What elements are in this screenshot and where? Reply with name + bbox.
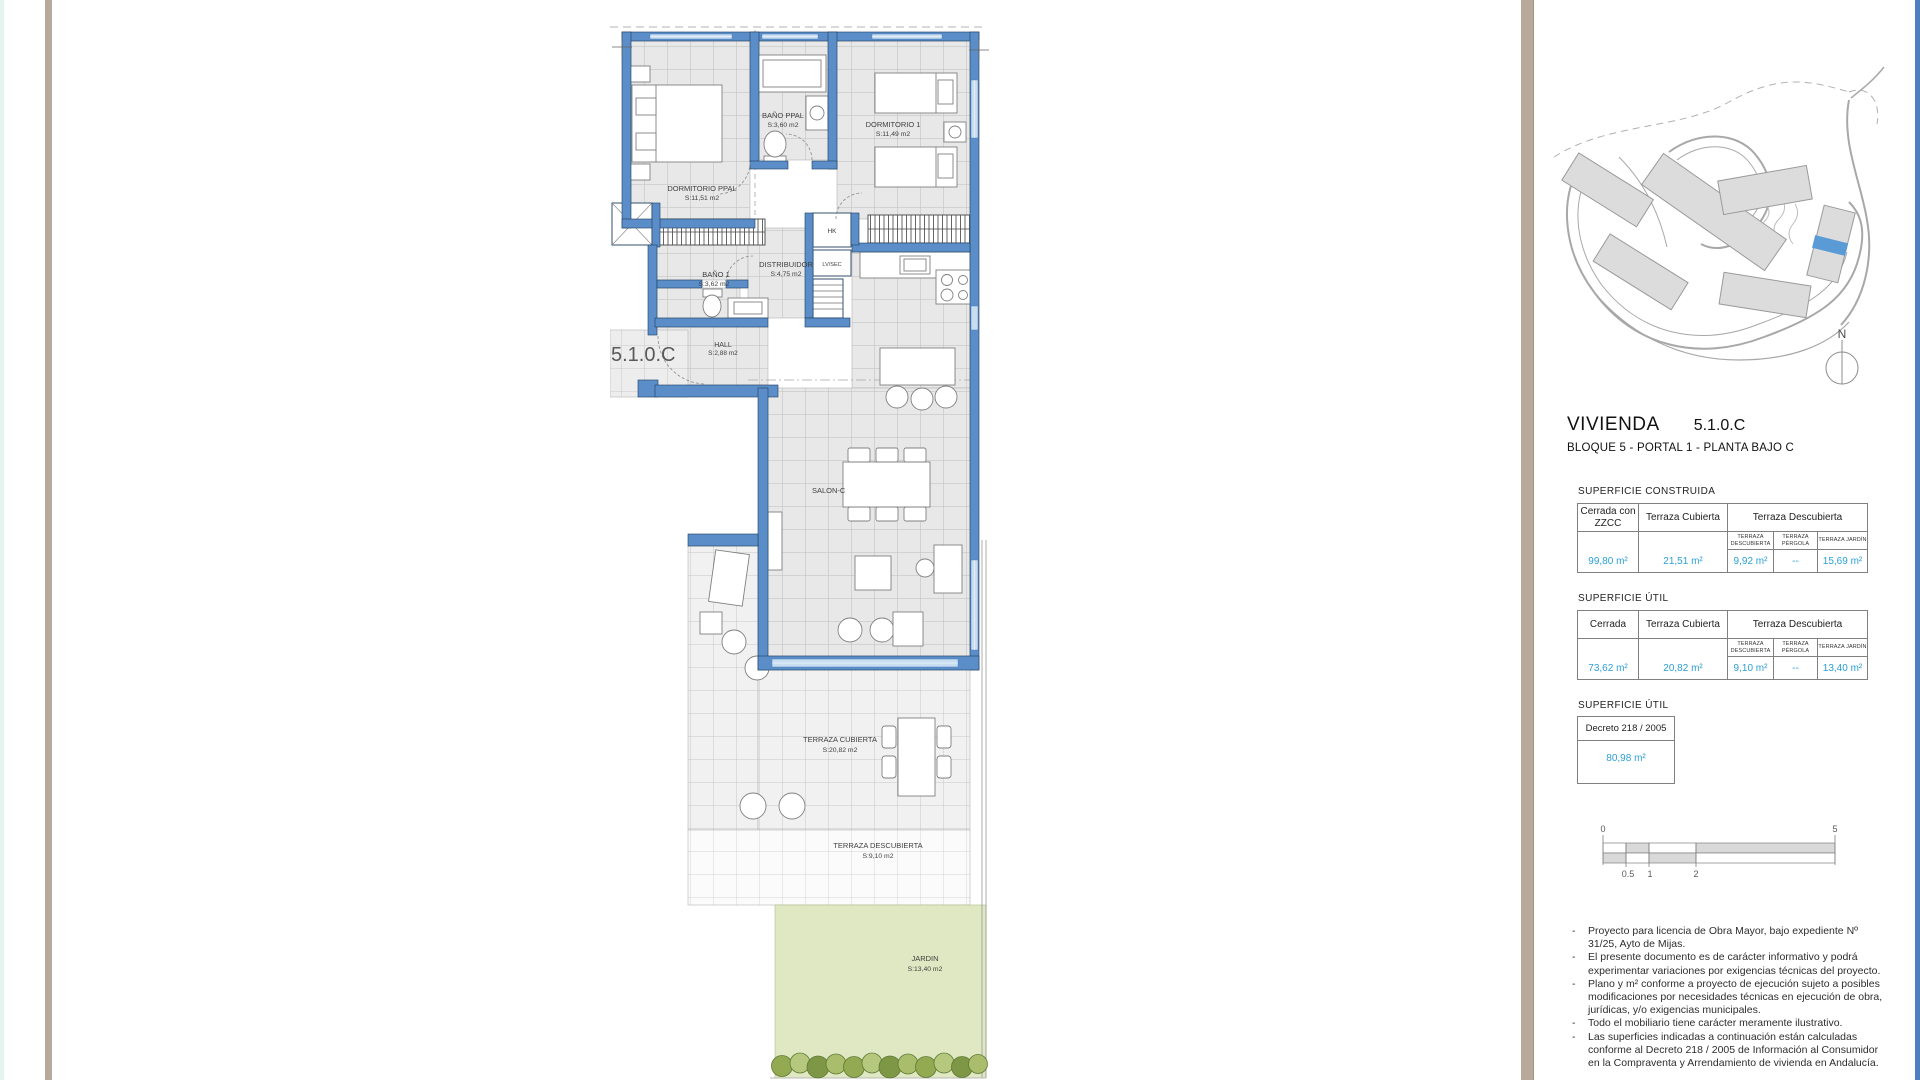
sub-header: TERRAZA PÉRGOLA bbox=[1774, 639, 1818, 657]
site-buildings bbox=[1562, 153, 1855, 318]
note-bullet: - bbox=[1572, 951, 1588, 977]
compass: N bbox=[1826, 327, 1858, 384]
label-distribuidor-area: S:4,75 m2 bbox=[771, 271, 802, 278]
note-text: Plano y m² conforme a proyecto de ejecuc… bbox=[1588, 978, 1884, 1018]
label-bano-1: BAÑO 1 bbox=[702, 270, 730, 279]
note-text: El presente documento es de carácter inf… bbox=[1588, 951, 1884, 977]
note-bullet: - bbox=[1572, 1017, 1588, 1030]
label-lvsec: LV/SEC bbox=[822, 262, 841, 268]
scale-5: 5 bbox=[1832, 824, 1837, 834]
table-value: 9,10 m² bbox=[1728, 657, 1774, 680]
right-blue-edge bbox=[1915, 0, 1920, 1080]
label-bano-1-area: S:3,62 m2 bbox=[699, 281, 730, 288]
building-c bbox=[1642, 153, 1787, 270]
note-item: - Proyecto para licencia de Obra Mayor, … bbox=[1572, 925, 1884, 951]
label-hall: HALL bbox=[714, 342, 732, 349]
table-value: -- bbox=[1774, 657, 1818, 680]
table-value: 15,69 m² bbox=[1818, 550, 1868, 573]
note-bullet: - bbox=[1572, 925, 1588, 951]
table-value: 21,51 m² bbox=[1639, 532, 1728, 573]
scale-0: 0 bbox=[1600, 824, 1605, 834]
label-jardin: JARDIN bbox=[911, 954, 938, 963]
table-value: 99,80 m² bbox=[1578, 532, 1639, 573]
scale-2: 2 bbox=[1693, 869, 1698, 879]
superficie-util-decreto-label: SUPERFICIE ÚTIL bbox=[1578, 700, 1668, 711]
building-d bbox=[1718, 165, 1813, 214]
label-terraza-cubierta: TERRAZA CUBIERTA bbox=[803, 735, 877, 744]
label-dormitorio-ppal: DORMITORIO PPAL bbox=[667, 184, 736, 193]
building-a bbox=[1562, 153, 1654, 227]
col-header: Cerrada bbox=[1578, 611, 1639, 639]
decreto-header: Decreto 218 / 2005 bbox=[1578, 717, 1674, 741]
decreto-box: Decreto 218 / 2005 80,98 m² bbox=[1577, 716, 1675, 784]
col-header: Terraza Descubierta bbox=[1728, 611, 1868, 639]
label-hall-area: S:2,88 m2 bbox=[708, 350, 738, 357]
label-dormitorio-ppal-area: S:11,51 m2 bbox=[685, 195, 719, 202]
label-bano-ppal: BAÑO PPAL bbox=[762, 111, 804, 120]
scale-0-5: 0.5 bbox=[1622, 869, 1635, 879]
building-b bbox=[1593, 234, 1688, 310]
site-location-map: N bbox=[1549, 62, 1909, 392]
page-subtitle: BLOQUE 5 - PORTAL 1 - PLANTA BAJO C bbox=[1567, 442, 1897, 454]
col-header: Terraza Cubierta bbox=[1639, 504, 1728, 532]
floor-bano-1 bbox=[657, 288, 740, 318]
label-terraza-cubierta-area: S:20,82 m2 bbox=[823, 747, 858, 754]
legal-notes: - Proyecto para licencia de Obra Mayor, … bbox=[1572, 925, 1884, 1070]
superficie-util-label: SUPERFICIE ÚTIL bbox=[1578, 593, 1668, 604]
label-hk: HK bbox=[827, 228, 837, 235]
sub-header: TERRAZA JARDÍN bbox=[1818, 532, 1868, 550]
col-header: Terraza Descubierta bbox=[1728, 504, 1868, 532]
note-item: - Todo el mobiliario tiene carácter mera… bbox=[1572, 1017, 1884, 1030]
scale-bar-segments bbox=[1603, 843, 1835, 863]
sub-header: TERRAZA JARDÍN bbox=[1818, 639, 1868, 657]
col-header: Terraza Cubierta bbox=[1639, 611, 1728, 639]
panel-divider-bar bbox=[1521, 0, 1534, 1080]
scale-1: 1 bbox=[1647, 869, 1652, 879]
room-floors bbox=[610, 41, 986, 1078]
note-text: Todo el mobiliario tiene carácter merame… bbox=[1588, 1017, 1884, 1030]
note-text: Proyecto para licencia de Obra Mayor, ba… bbox=[1588, 925, 1884, 951]
sub-header: TERRAZA DESCUBIERTA bbox=[1728, 532, 1774, 550]
north-label: N bbox=[1838, 327, 1847, 341]
left-frame-bar bbox=[45, 0, 52, 1080]
note-item: - Las superficies indicadas a continuaci… bbox=[1572, 1031, 1884, 1071]
unit-code-label: 5.1.0.C bbox=[611, 344, 675, 366]
label-terraza-descubierta: TERRAZA DESCUBIERTA bbox=[833, 841, 922, 850]
note-text: Las superficies indicadas a continuación… bbox=[1588, 1031, 1884, 1071]
note-bullet: - bbox=[1572, 1031, 1588, 1071]
scale-bar: 0 5 0.5 1 2 bbox=[1596, 820, 1846, 880]
table-value: 73,62 m² bbox=[1578, 639, 1639, 680]
note-item: - El presente documento es de carácter i… bbox=[1572, 951, 1884, 977]
floor-salon bbox=[768, 388, 970, 656]
label-bano-ppal-area: S:3,60 m2 bbox=[768, 122, 799, 129]
sub-header: TERRAZA PÉRGOLA bbox=[1774, 532, 1818, 550]
label-salon: SALON-C bbox=[812, 486, 846, 495]
label-jardin-area: S:13,40 m2 bbox=[908, 966, 943, 973]
title-block: VIVIENDA 5.1.0.C BLOQUE 5 - PORTAL 1 - P… bbox=[1567, 414, 1897, 454]
table-value: 9,92 m² bbox=[1728, 550, 1774, 573]
table-value: 13,40 m² bbox=[1818, 657, 1868, 680]
table-value: -- bbox=[1774, 550, 1818, 573]
superficie-util-table: Cerrada Terraza Cubierta Terraza Descubi… bbox=[1577, 610, 1868, 680]
left-aqua-edge bbox=[0, 0, 4, 1080]
table-value: 20,82 m² bbox=[1639, 639, 1728, 680]
unit-code: 5.1.0.C bbox=[1694, 417, 1746, 435]
page-title: VIVIENDA bbox=[1567, 414, 1660, 436]
label-dormitorio-1-area: S:11,49 m2 bbox=[876, 131, 910, 138]
note-bullet: - bbox=[1572, 978, 1588, 1018]
col-header: Cerrada con ZZCC bbox=[1578, 504, 1639, 532]
label-dormitorio-1: DORMITORIO 1 bbox=[866, 120, 921, 129]
floor-plan-drawing: DORMITORIO PPAL S:11,51 m2 BAÑO PPAL S:3… bbox=[610, 20, 995, 1080]
floor-jardin bbox=[775, 905, 986, 1078]
superficie-construida-label: SUPERFICIE CONSTRUIDA bbox=[1578, 486, 1715, 497]
building-f bbox=[1719, 272, 1811, 317]
note-item: - Plano y m² conforme a proyecto de ejec… bbox=[1572, 978, 1884, 1018]
superficie-construida-table: Cerrada con ZZCC Terraza Cubierta Terraz… bbox=[1577, 503, 1868, 573]
label-terraza-descubierta-area: S:9,10 m2 bbox=[863, 853, 894, 860]
floor-terraza-descubierta bbox=[688, 830, 970, 905]
sub-header: TERRAZA DESCUBIERTA bbox=[1728, 639, 1774, 657]
label-distribuidor: DISTRIBUIDOR bbox=[759, 260, 813, 269]
decreto-value: 80,98 m² bbox=[1578, 741, 1674, 783]
